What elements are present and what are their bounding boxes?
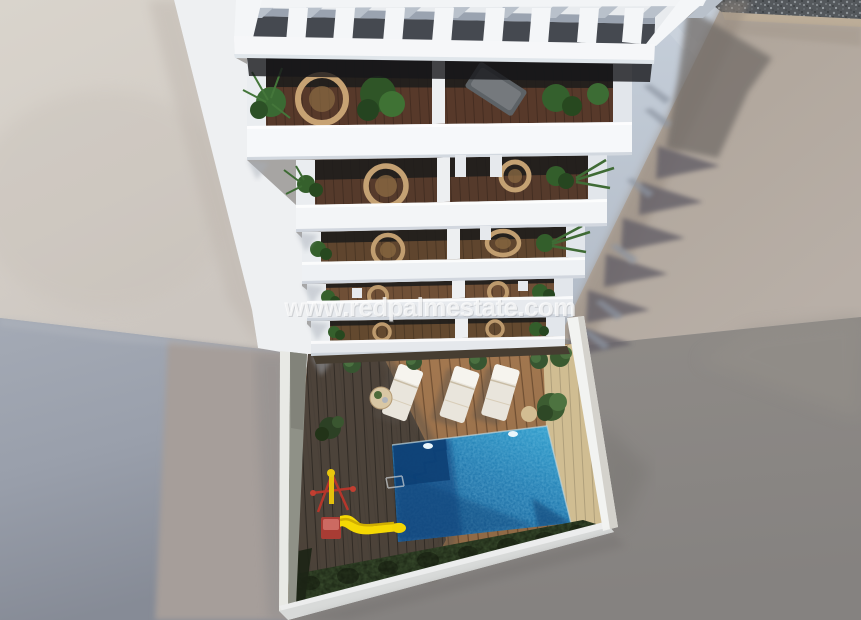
svg-text:www.redpalmestate.com: www.redpalmestate.com xyxy=(283,292,575,322)
